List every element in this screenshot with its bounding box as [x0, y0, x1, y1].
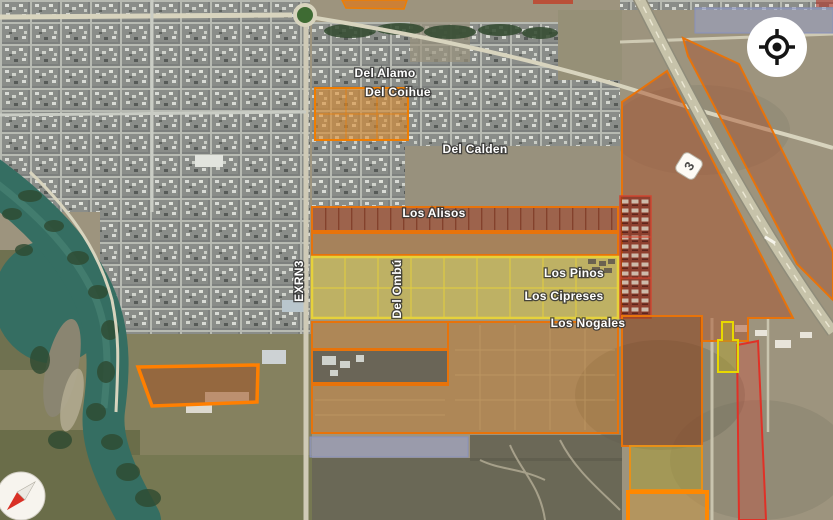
label-del-calden: Del Calden — [442, 142, 507, 156]
zone-left-trapezoid[interactable] — [138, 365, 258, 406]
label-del-ombu: Del Ombú — [390, 259, 404, 318]
label-los-pinos: Los Pinos — [544, 266, 604, 280]
label-los-nogales: Los Nogales — [551, 316, 626, 330]
label-del-coihue: Del Coihue — [365, 85, 431, 99]
label-del-alamo: Del Alamo — [355, 66, 416, 80]
map-viewport[interactable]: 3 Del Alamo Del Coihue Del Calden Los Al… — [0, 0, 833, 520]
zone-outline-strip[interactable] — [312, 350, 448, 383]
steppe-gap — [405, 146, 620, 206]
road-top-highway — [0, 15, 292, 17]
zone-olive-parcel[interactable] — [630, 446, 702, 490]
building — [262, 350, 286, 364]
scrubland — [470, 435, 622, 461]
zone-housing-buildings — [622, 198, 649, 316]
scrubland — [312, 458, 622, 520]
zone-lavender-south[interactable] — [310, 437, 468, 457]
zone-band-two[interactable] — [312, 233, 618, 255]
label-los-alisos: Los Alisos — [402, 206, 465, 220]
zone-dark-brown[interactable] — [622, 316, 702, 446]
zone-band-a[interactable] — [312, 322, 448, 349]
zone-bright-orange-parcel[interactable] — [628, 492, 707, 520]
city-grid-area — [0, 0, 310, 212]
building — [195, 155, 223, 167]
zone-top-sliver[interactable] — [342, 0, 407, 9]
zone-corner-red[interactable] — [816, 0, 833, 7]
compass-button[interactable] — [0, 472, 45, 520]
label-exrn3: EXRN3 — [292, 260, 306, 302]
zone-top-red-streak[interactable] — [533, 0, 573, 4]
label-los-cipreses: Los Cipreses — [525, 289, 604, 303]
city-grid-area — [100, 212, 310, 334]
roundabout — [295, 5, 315, 25]
my-location-button[interactable] — [747, 17, 807, 77]
